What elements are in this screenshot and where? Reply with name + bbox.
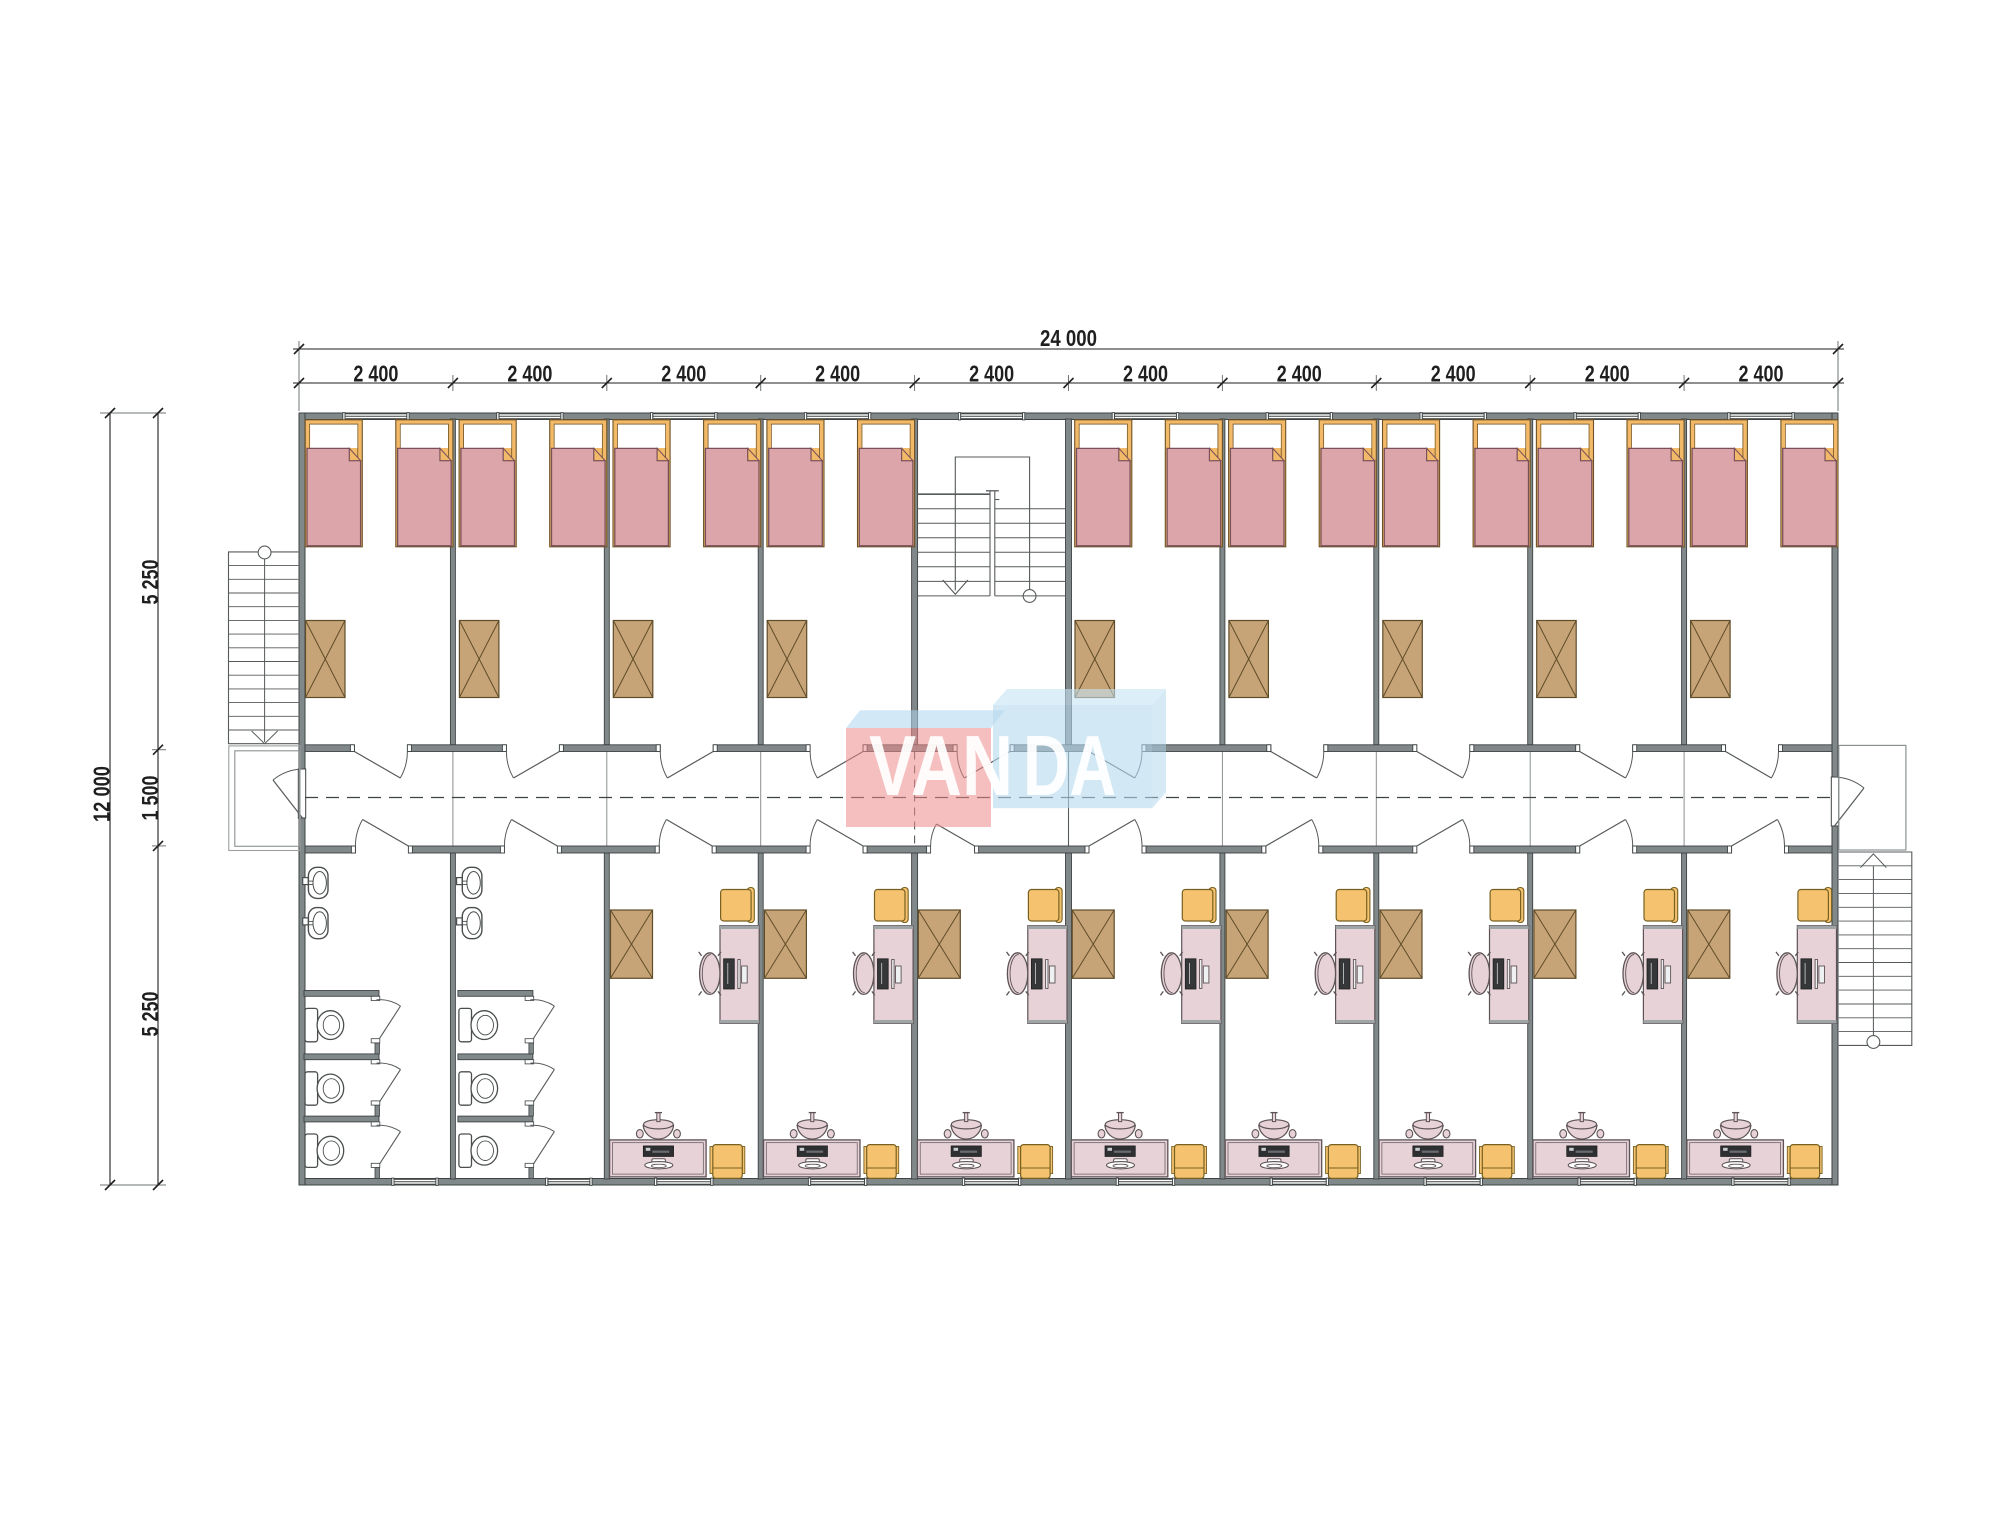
svg-text:2 400: 2 400 bbox=[661, 361, 706, 387]
svg-text:2 400: 2 400 bbox=[1585, 361, 1630, 387]
svg-text:2 400: 2 400 bbox=[1123, 361, 1168, 387]
svg-text:2 400: 2 400 bbox=[507, 361, 552, 387]
svg-text:1 500: 1 500 bbox=[137, 776, 163, 821]
svg-text:2 400: 2 400 bbox=[1739, 361, 1784, 387]
svg-text:5 250: 5 250 bbox=[137, 560, 163, 605]
svg-text:24 000: 24 000 bbox=[1040, 325, 1097, 351]
svg-text:VAN: VAN bbox=[869, 719, 1013, 814]
svg-text:2 400: 2 400 bbox=[353, 361, 398, 387]
svg-text:2 400: 2 400 bbox=[1431, 361, 1476, 387]
svg-text:5 250: 5 250 bbox=[137, 992, 163, 1037]
svg-text:2 400: 2 400 bbox=[969, 361, 1014, 387]
svg-text:2 400: 2 400 bbox=[815, 361, 860, 387]
svg-text:2 400: 2 400 bbox=[1277, 361, 1322, 387]
svg-text:DA: DA bbox=[1023, 719, 1116, 814]
svg-text:12 000: 12 000 bbox=[89, 766, 115, 822]
